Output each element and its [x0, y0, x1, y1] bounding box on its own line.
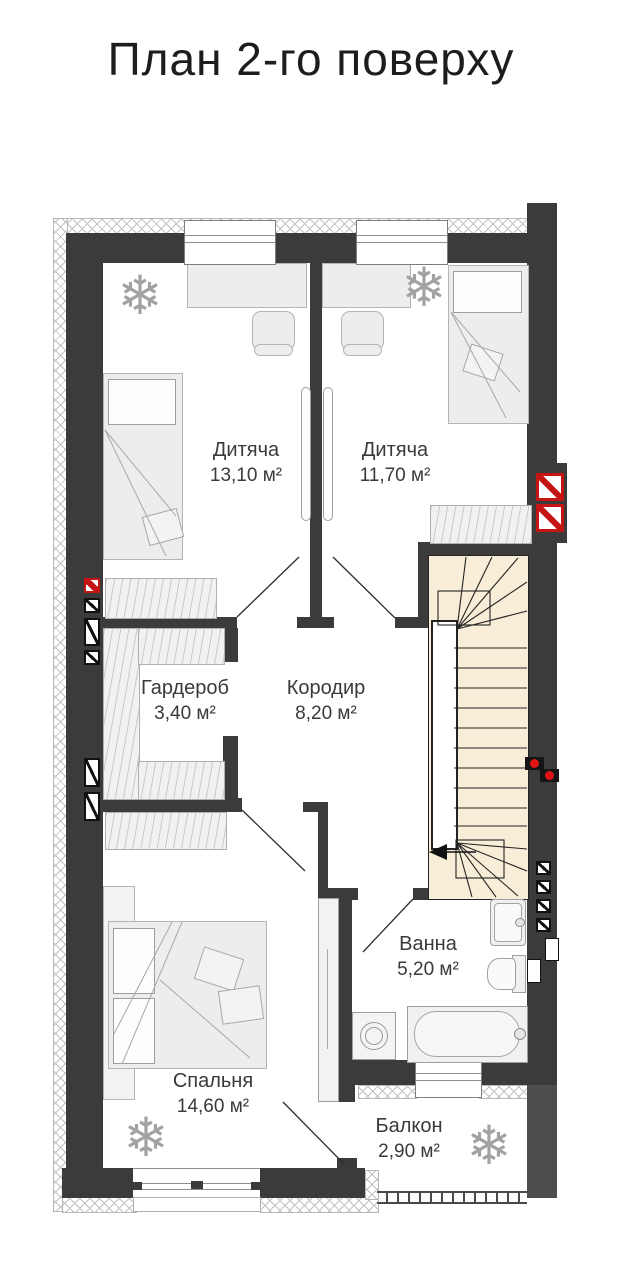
duct-symbol-right-1 — [536, 861, 551, 875]
duct-symbol-left-5 — [84, 792, 100, 821]
boiler-point-2 — [540, 769, 559, 782]
wall-niche-1 — [545, 938, 559, 961]
chair-left-back — [254, 344, 293, 356]
washing-machine-icon — [352, 1012, 396, 1060]
room-label-balcony: Балкон 2,90 м² — [324, 1114, 494, 1164]
plant-icon: ❄ — [112, 268, 168, 324]
room-area: 13,10 м² — [161, 463, 331, 488]
room-label-children-right: Дитяча 11,70 м² — [310, 438, 480, 488]
duct-symbol-right-3 — [536, 899, 551, 913]
wall-niche-2 — [527, 959, 541, 983]
duct-symbol-right-2 — [536, 880, 551, 894]
wardrobe-shelf-bottom — [138, 761, 225, 800]
sliding-door-panel — [318, 898, 339, 1102]
duct-symbol-left-2 — [84, 618, 100, 646]
wall-bedroom-bottom-left — [62, 1168, 133, 1198]
room-label-corridor: Кородир 8,20 м² — [241, 676, 411, 726]
closet-bedroom — [105, 812, 227, 850]
closet-children-left — [105, 578, 217, 619]
wall-left — [66, 233, 103, 1198]
insulation-hatch-bottom-mid — [260, 1197, 379, 1213]
chair-right-back — [343, 344, 382, 356]
room-name: Спальня — [128, 1069, 298, 1094]
room-label-bathroom: Ванна 5,20 м² — [343, 932, 513, 982]
duct-symbol-left-1 — [84, 598, 100, 613]
wall-bedroom-bottom-right — [260, 1168, 365, 1198]
room-area: 8,20 м² — [241, 701, 411, 726]
desk-left — [187, 263, 307, 308]
room-area: 11,70 м² — [310, 463, 480, 488]
pillow-double-top — [113, 928, 155, 994]
closet-children-right — [430, 505, 532, 544]
vent-symbol-left — [84, 578, 100, 593]
duct-symbol-left-3 — [84, 650, 100, 665]
room-area: 2,90 м² — [324, 1139, 494, 1164]
duct-symbol-left-4 — [84, 758, 100, 787]
insulation-hatch-bottom-left — [62, 1197, 137, 1213]
room-area: 5,20 м² — [343, 957, 513, 982]
duct-symbol-right-4 — [536, 918, 551, 932]
pillow-children-right — [453, 271, 522, 313]
wall-corridor-bedroom-cap — [303, 802, 328, 812]
wall-balcony-right — [527, 1085, 557, 1198]
vent-symbol-right-1 — [536, 473, 564, 501]
wardrobe-shelf-top — [138, 628, 225, 665]
window-bedroom — [133, 1168, 260, 1211]
page-title: План 2-го поверху — [0, 32, 622, 86]
pillow-children-left — [108, 379, 176, 425]
room-name: Дитяча — [310, 438, 480, 463]
throw-pillow-bed-2 — [218, 985, 264, 1025]
room-name: Ванна — [343, 932, 513, 957]
room-name: Кородир — [241, 676, 411, 701]
room-name: Балкон — [324, 1114, 494, 1139]
insulation-hatch-balcony-top-right — [479, 1085, 529, 1099]
pillow-double-bottom — [113, 998, 155, 1064]
wall-wardrobe-right-upper — [223, 628, 238, 662]
room-label-children-left: Дитяча 13,10 м² — [161, 438, 331, 488]
plant-icon: ❄ — [396, 260, 452, 316]
insulation-hatch-balcony-top-left — [358, 1085, 417, 1099]
floor-plan-page: План 2-го поверху — [0, 0, 622, 1280]
room-label-bedroom: Спальня 14,60 м² — [128, 1069, 298, 1119]
room-area: 14,60 м² — [128, 1094, 298, 1119]
vent-symbol-right-2 — [536, 504, 564, 532]
balcony-railing — [377, 1191, 527, 1204]
wall-wardrobe-right-lower — [223, 736, 238, 798]
window-children-left — [184, 220, 276, 265]
wall-partition-cap — [297, 617, 334, 628]
stair-void-railing — [431, 620, 458, 850]
wall-top — [66, 233, 530, 263]
wall-corridor-bedroom — [318, 812, 328, 890]
wall-chimney — [527, 203, 557, 234]
window-bathroom-balcony — [415, 1062, 482, 1098]
bathtub-icon — [407, 1006, 528, 1063]
room-name: Дитяча — [161, 438, 331, 463]
